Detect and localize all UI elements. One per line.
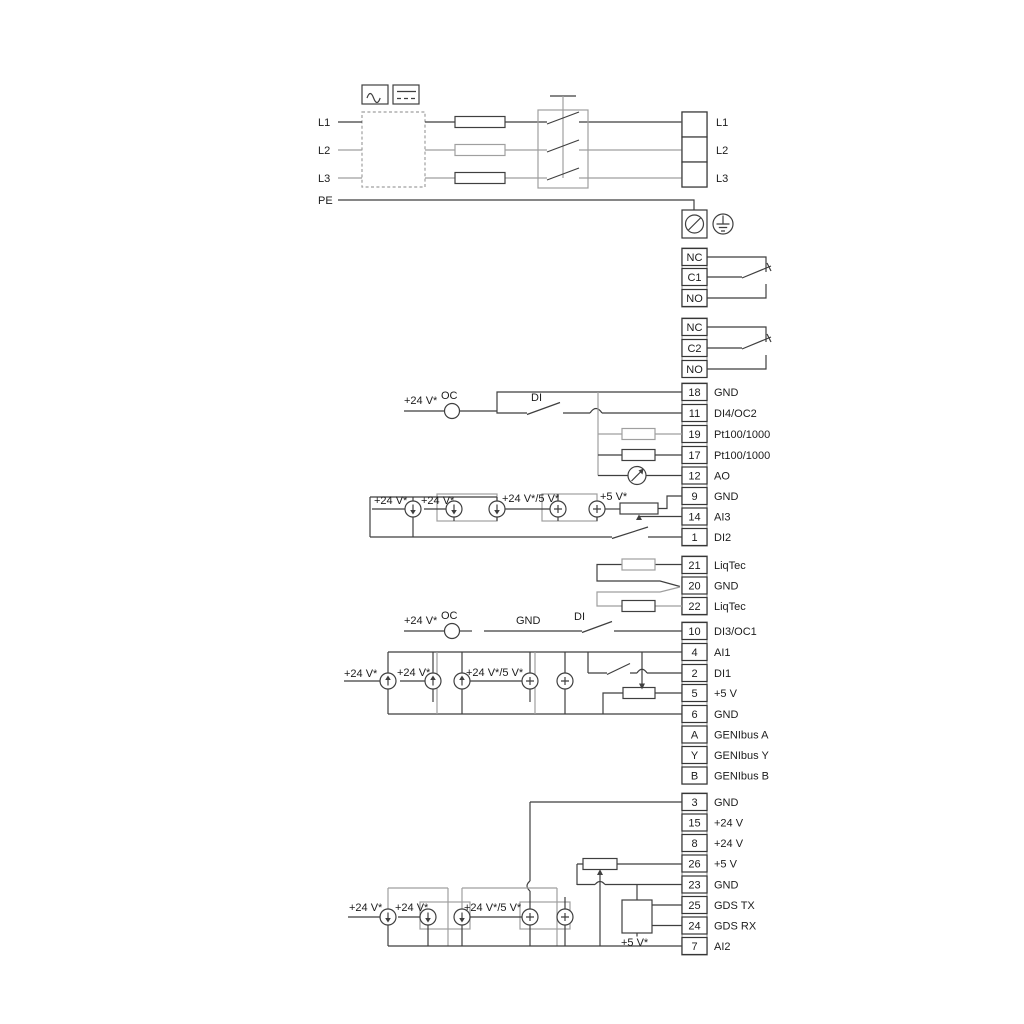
di4-oc2-circuit: +24 V* OC DI — [404, 390, 682, 419]
pt100-ao-circuits — [598, 392, 682, 485]
relay2-nc: NC — [687, 322, 703, 334]
terminal-function: AO — [714, 471, 730, 483]
earth-ground-icon — [713, 214, 733, 234]
wire-hop — [590, 409, 602, 414]
terminal-number: 23 — [688, 880, 700, 892]
gnd-label: GND — [516, 615, 541, 627]
liqtec-sensor-resistor — [622, 559, 655, 570]
terminal-function: DI4/OC2 — [714, 408, 757, 420]
oc-label: OC — [441, 610, 458, 622]
voltage-source-icon — [522, 673, 538, 689]
phase-label-l2: L2 — [318, 145, 330, 157]
pe-label: PE — [318, 195, 333, 207]
terminal-number: 8 — [691, 838, 697, 850]
terminal-number: 5 — [691, 688, 697, 700]
terminal-function: DI3/OC1 — [714, 626, 757, 638]
terminal-number: 11 — [689, 408, 700, 420]
mains-terminal-block: L1 L2 L3 — [682, 112, 728, 187]
di-switch-contact — [527, 403, 560, 415]
terminal-number: 3 — [691, 797, 697, 809]
voltage-source-icon — [522, 909, 538, 925]
terminal-function: GND — [714, 387, 739, 399]
v24-5v-label: +24 V*/5 V* — [502, 493, 560, 505]
terminal-function: AI1 — [714, 647, 731, 659]
terminal-number: 25 — [688, 900, 700, 912]
terminal-number: 10 — [688, 626, 700, 638]
terminal-number: 6 — [691, 709, 697, 721]
pt100-resistor — [622, 450, 655, 461]
terminal-function: +24 V — [714, 838, 744, 850]
potentiometer — [620, 503, 658, 514]
terminal-function: GND — [714, 581, 739, 593]
terminal-function: DI2 — [714, 532, 731, 544]
terminal-number: 17 — [688, 450, 700, 462]
open-collector-icon — [445, 624, 460, 639]
terminal-function: AI3 — [714, 512, 731, 524]
terminal-function: GENIbus B — [714, 771, 769, 783]
wire-hop — [527, 881, 530, 891]
terminal-function: LiqTec — [714, 601, 746, 613]
phase-wires — [338, 122, 694, 210]
v24-label: +24 V* — [404, 395, 438, 407]
relay-1: NC C1 NO — [682, 248, 771, 307]
v24-label: +24 V* — [404, 615, 438, 627]
pe-terminal — [682, 210, 707, 238]
terminal-number: B — [691, 771, 698, 783]
current-source-icon — [489, 501, 505, 517]
terminal-number: 24 — [688, 921, 700, 933]
terminal-function: +24 V — [714, 818, 744, 830]
v24-label: +24 V* — [349, 902, 383, 914]
terminal-cell-l3 — [682, 162, 707, 187]
potentiometer — [583, 859, 617, 870]
di1-switch-contact — [607, 664, 630, 675]
terminal-label-l1: L1 — [716, 117, 728, 129]
terminal-function: +5 V — [714, 859, 738, 871]
mains-input-section: L1 L2 L3 PE — [318, 85, 733, 238]
di-switch-contact — [582, 622, 612, 633]
v24-label: +24 V* — [344, 668, 378, 680]
terminal-number: 14 — [688, 512, 700, 524]
terminal-number: 1 — [691, 532, 697, 544]
converter-box — [362, 112, 425, 187]
relay1-c1: C1 — [687, 272, 701, 284]
gds-sensor: +5 V* — [621, 885, 682, 950]
terminal-label-l2: L2 — [716, 145, 728, 157]
liqtec-sensor-resistor — [622, 601, 655, 612]
terminal-cell-l2 — [682, 137, 707, 162]
relay1-changeover-contact — [707, 257, 771, 298]
terminal-number: 21 — [688, 560, 700, 572]
wiper-arrow — [636, 515, 642, 521]
bottom-io-circuit: +24 V* +24 V* +24 V*/5 V* +5 V* — [348, 802, 682, 949]
dc-icon — [393, 85, 419, 104]
terminal-number: 7 — [691, 941, 697, 953]
relay1-nc: NC — [687, 252, 703, 264]
fuse-l2 — [455, 145, 505, 156]
pt100-resistor — [622, 429, 655, 440]
voltage-source-icon — [557, 909, 573, 925]
current-source-icon — [454, 909, 470, 925]
relay2-no: NO — [686, 364, 703, 376]
terminal-number: 18 — [688, 387, 700, 399]
terminal-number: 15 — [688, 818, 700, 830]
phase-label-l1: L1 — [318, 117, 330, 129]
fuse-l3 — [455, 173, 505, 184]
terminal-number: Y — [691, 750, 699, 762]
v24-label: +24 V* — [374, 495, 408, 507]
oc-label: OC — [441, 390, 458, 402]
terminal-function: GND — [714, 797, 739, 809]
open-collector-icon — [445, 404, 460, 419]
terminal-label-l3: L3 — [716, 173, 728, 185]
phase-label-l3: L3 — [318, 173, 330, 185]
ac-icon — [362, 85, 388, 104]
voltage-source-icon — [550, 501, 566, 517]
terminal-cell-l1 — [682, 112, 707, 137]
terminal-number: 20 — [688, 581, 700, 593]
terminal-block-liqtec: 21 20 22 LiqTec GND LiqTec — [682, 556, 746, 615]
di3-oc1-circuit: +24 V* OC GND DI — [404, 610, 682, 639]
terminal-number: 2 — [691, 668, 697, 680]
di-label: DI — [574, 611, 585, 623]
di2-switch-contact — [612, 527, 648, 539]
v24-5v-label: +24 V*/5 V* — [464, 902, 522, 914]
terminal-block-mid: 10 4 2 5 6 A Y B DI3/OC1 AI1 DI1 +5 V GN… — [682, 622, 769, 784]
terminal-function: Pt100/1000 — [714, 429, 770, 441]
current-source-icon — [446, 501, 462, 517]
terminal-number: 4 — [691, 647, 697, 659]
terminal-function: GND — [714, 880, 739, 892]
current-source-icon — [405, 501, 421, 517]
terminal-number: 26 — [688, 859, 700, 871]
terminal-function: Pt100/1000 — [714, 450, 770, 462]
ai1-di1-circuit: +24 V* +24 V* +24 V*/5 V* — [344, 652, 682, 714]
terminal-function: GDS RX — [714, 921, 757, 933]
terminal-number: 22 — [688, 601, 700, 613]
terminal-function: GND — [714, 709, 739, 721]
current-source-icon — [380, 909, 396, 925]
main-switch — [538, 96, 588, 188]
v24-5v-label: +24 V*/5 V* — [466, 667, 524, 679]
v5-label: +5 V* — [621, 937, 649, 949]
relay-2: NC C2 NO — [682, 318, 771, 378]
terminal-function: GENIbus Y — [714, 750, 769, 762]
relay2-changeover-contact — [707, 327, 771, 369]
current-source-icon — [380, 673, 396, 689]
current-source-icon — [425, 673, 441, 689]
terminal-number: 9 — [691, 491, 697, 503]
current-source-icon — [454, 673, 470, 689]
voltage-source-icon — [557, 673, 573, 689]
potentiometer — [623, 688, 655, 699]
pe-wire — [338, 200, 694, 210]
terminal-function: LiqTec — [714, 560, 746, 572]
liqtec-circuit — [597, 559, 682, 612]
terminal-function: GND — [714, 491, 739, 503]
current-source-icon — [420, 909, 436, 925]
terminal-number: 12 — [688, 471, 700, 483]
wiring-diagram: L1 L2 L3 PE — [0, 0, 1024, 1024]
terminal-function: GENIbus A — [714, 730, 769, 742]
terminal-number: 19 — [688, 429, 700, 441]
relay1-no: NO — [686, 293, 703, 305]
terminal-block-top: 18 11 19 17 12 9 14 1 GND DI4/OC2 Pt100/… — [682, 383, 770, 546]
di-label: DI — [531, 392, 542, 404]
relay2-c2: C2 — [687, 343, 701, 355]
terminal-block-bottom: 3 15 8 26 23 25 24 7 GND +24 V +24 V +5 … — [682, 793, 757, 955]
ai3-di2-circuit: +24 V* +24 V* +24 V*/5 V* +5 V* — [370, 491, 682, 539]
terminal-function: AI2 — [714, 941, 731, 953]
wiper-arrow — [639, 684, 645, 690]
terminal-function: +5 V — [714, 688, 738, 700]
fuse-l1 — [455, 117, 505, 128]
terminal-function: GDS TX — [714, 900, 755, 912]
v5-label: +5 V* — [600, 491, 628, 503]
voltage-source-icon — [589, 501, 605, 517]
terminal-function: DI1 — [714, 668, 731, 680]
terminal-number: A — [691, 730, 699, 742]
